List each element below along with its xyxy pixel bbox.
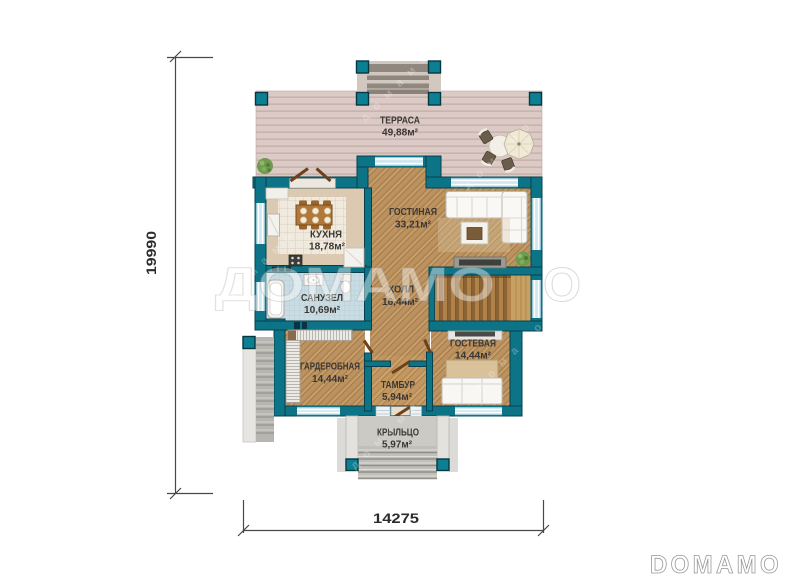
svg-text:О: О	[543, 259, 581, 312]
svg-text:14,44м²: 14,44м²	[455, 350, 491, 362]
svg-text:ТАМБУР: ТАМБУР	[381, 380, 415, 391]
svg-text:ГАРДЕРОБНАЯ: ГАРДЕРОБНАЯ	[300, 362, 360, 373]
svg-text:ГОСТЕВАЯ: ГОСТЕВАЯ	[450, 339, 496, 350]
svg-text:14275: 14275	[373, 510, 419, 526]
svg-text:ТЕРРАСА: ТЕРРАСА	[380, 116, 420, 127]
svg-text:49,88м²: 49,88м²	[382, 127, 418, 139]
svg-text:19990: 19990	[143, 231, 159, 275]
svg-text:КУХНЯ: КУХНЯ	[310, 230, 342, 241]
svg-text:5,94м²: 5,94м²	[382, 391, 412, 403]
svg-text:ГОСТИНАЯ: ГОСТИНАЯ	[389, 207, 437, 218]
svg-text:18,78м²: 18,78м²	[309, 241, 345, 253]
svg-text:14,44м²: 14,44м²	[312, 373, 348, 385]
svg-text:33,21м²: 33,21м²	[395, 219, 431, 231]
svg-text:DOMAMO: DOMAMO	[650, 551, 782, 579]
